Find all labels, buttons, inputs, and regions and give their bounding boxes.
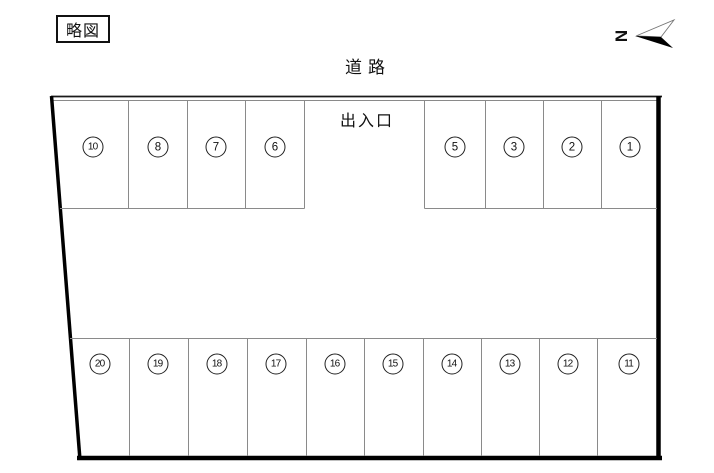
stall-5: 5 xyxy=(445,137,466,158)
stall-number: 6 xyxy=(272,141,278,153)
stall-number: 5 xyxy=(452,141,458,153)
stall-number: 7 xyxy=(213,141,219,153)
stall-3: 3 xyxy=(504,137,525,158)
north-arrow-icon: N xyxy=(612,20,675,48)
north-letter: N xyxy=(612,30,631,42)
stall-12: 12 xyxy=(558,354,579,375)
stall-10: 10 xyxy=(83,137,104,158)
sketch-title: 略図 xyxy=(66,17,100,41)
stall-number: 13 xyxy=(506,359,515,370)
stall-7: 7 xyxy=(206,137,227,158)
stall-number: 10 xyxy=(89,142,98,153)
stall-20: 20 xyxy=(90,354,111,375)
stall-2: 2 xyxy=(562,137,583,158)
north-arrow-upper-wing xyxy=(636,20,674,37)
stall-16: 16 xyxy=(325,354,346,375)
entrance-label: 出入口 xyxy=(316,107,416,131)
stall-6: 6 xyxy=(265,137,286,158)
stall-14: 14 xyxy=(442,354,463,375)
parking-lot-sketch: N 略図 道路 出入口 10 8 7 6 5 3 2 1 20 19 18 17… xyxy=(0,0,714,473)
stall-number: 17 xyxy=(272,359,281,370)
stall-number: 15 xyxy=(389,359,398,370)
stall-17: 17 xyxy=(266,354,287,375)
stall-number: 14 xyxy=(448,359,457,370)
stall-number: 3 xyxy=(511,141,517,153)
stall-number: 19 xyxy=(154,359,163,370)
stall-number: 16 xyxy=(331,359,340,370)
stall-8: 8 xyxy=(148,137,169,158)
stall-number: 20 xyxy=(96,359,105,370)
sketch-title-box: 略図 xyxy=(56,15,110,43)
stall-1: 1 xyxy=(620,137,641,158)
stall-number: 12 xyxy=(564,359,573,370)
stall-number: 2 xyxy=(569,141,575,153)
stall-18: 18 xyxy=(207,354,228,375)
stall-11: 11 xyxy=(619,354,640,375)
stall-15: 15 xyxy=(383,354,404,375)
lot-boundary-left xyxy=(52,96,81,460)
road-label: 道路 xyxy=(315,53,415,78)
stall-number: 1 xyxy=(627,141,633,153)
stall-number: 8 xyxy=(155,141,161,153)
stall-13: 13 xyxy=(500,354,521,375)
stall-19: 19 xyxy=(148,354,169,375)
stall-number: 18 xyxy=(213,359,222,370)
north-arrow-lower-wing xyxy=(635,36,673,48)
stall-number: 11 xyxy=(625,359,633,370)
